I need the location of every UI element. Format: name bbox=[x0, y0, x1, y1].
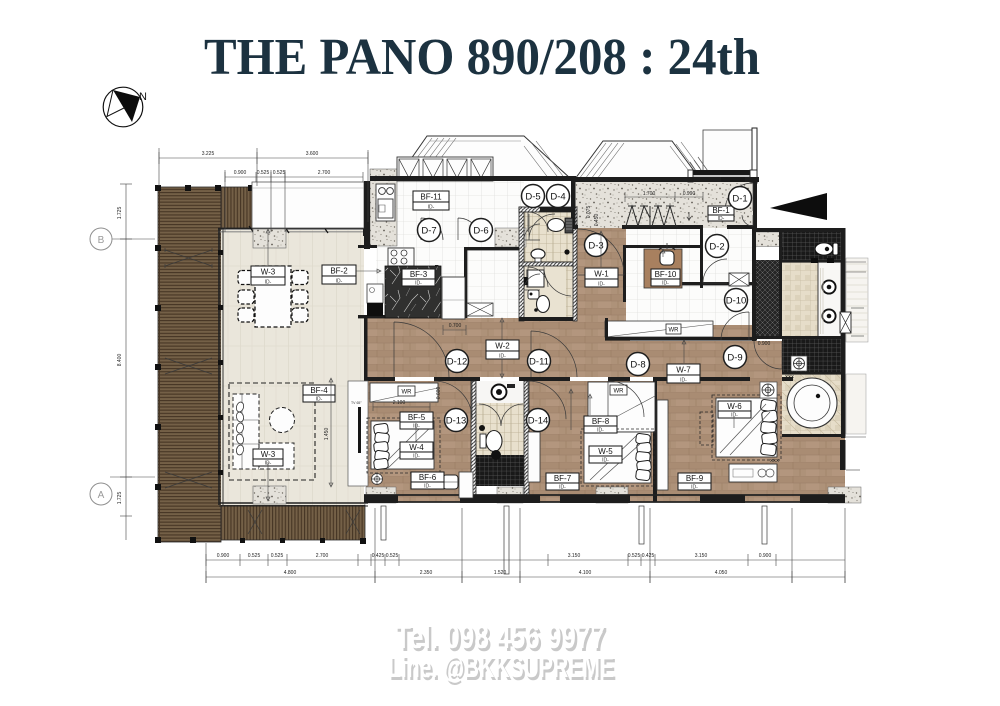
svg-text:ID-: ID- bbox=[336, 279, 343, 285]
svg-text:2.100: 2.100 bbox=[393, 400, 406, 406]
svg-text:0.525: 0.525 bbox=[271, 553, 284, 559]
svg-text:BF-5: BF-5 bbox=[408, 413, 426, 422]
svg-text:1.450: 1.450 bbox=[324, 428, 330, 441]
svg-text:N: N bbox=[139, 91, 147, 103]
svg-text:WR: WR bbox=[402, 390, 413, 396]
svg-text:BF-4: BF-4 bbox=[310, 386, 328, 395]
svg-text:BF-6: BF-6 bbox=[419, 473, 437, 482]
svg-text:1.725: 1.725 bbox=[117, 207, 123, 220]
svg-text:ID-: ID- bbox=[413, 424, 420, 430]
svg-text:1.700: 1.700 bbox=[643, 191, 656, 197]
svg-text:2.700: 2.700 bbox=[318, 170, 331, 176]
svg-text:TV 65": TV 65" bbox=[351, 401, 362, 405]
svg-text:D-5: D-5 bbox=[525, 192, 540, 203]
svg-text:0.900: 0.900 bbox=[759, 553, 772, 559]
svg-text:W-6: W-6 bbox=[727, 402, 742, 411]
svg-text:3.225: 3.225 bbox=[202, 151, 215, 157]
svg-text:0.900: 0.900 bbox=[217, 553, 230, 559]
svg-text:ID-: ID- bbox=[718, 216, 725, 222]
svg-text:4.050: 4.050 bbox=[715, 570, 728, 576]
svg-text:A: A bbox=[98, 490, 105, 501]
svg-text:0.900: 0.900 bbox=[758, 341, 771, 347]
svg-text:1.520: 1.520 bbox=[494, 570, 507, 576]
svg-text:BF-9: BF-9 bbox=[686, 474, 704, 483]
svg-text:ID-: ID- bbox=[662, 281, 669, 287]
svg-text:D-10: D-10 bbox=[726, 296, 747, 307]
svg-text:Line. @BKKSUPREME: Line. @BKKSUPREME bbox=[388, 649, 614, 684]
svg-text:0.990: 0.990 bbox=[683, 191, 696, 197]
svg-text:ID-: ID- bbox=[428, 205, 435, 211]
svg-text:THE PANO 890/208 : 24th: THE PANO 890/208 : 24th bbox=[204, 29, 760, 86]
svg-text:0.900: 0.900 bbox=[234, 170, 247, 176]
svg-text:BF-7: BF-7 bbox=[554, 474, 572, 483]
svg-text:BF-2: BF-2 bbox=[330, 267, 348, 276]
svg-text:D-11: D-11 bbox=[529, 357, 549, 368]
svg-text:2.350: 2.350 bbox=[420, 570, 433, 576]
svg-text:WR: WR bbox=[669, 328, 680, 334]
svg-text:3.150: 3.150 bbox=[695, 553, 708, 559]
svg-text:ID-: ID- bbox=[691, 485, 698, 491]
svg-text:D-6: D-6 bbox=[473, 226, 488, 237]
svg-text:ID-: ID- bbox=[559, 485, 566, 491]
svg-text:4.800: 4.800 bbox=[284, 570, 297, 576]
svg-text:D-2: D-2 bbox=[709, 242, 724, 253]
svg-text:ID-: ID- bbox=[598, 282, 605, 288]
svg-text:W-7: W-7 bbox=[676, 366, 691, 375]
svg-text:XXX: XXX bbox=[770, 458, 779, 463]
svg-text:0.525: 0.525 bbox=[273, 170, 286, 176]
svg-text:0.600: 0.600 bbox=[436, 387, 442, 400]
svg-text:4.100: 4.100 bbox=[579, 570, 592, 576]
svg-text:ID-: ID- bbox=[499, 354, 506, 360]
svg-text:0.525: 0.525 bbox=[257, 170, 270, 176]
svg-text:D-13: D-13 bbox=[446, 416, 467, 427]
svg-text:B: B bbox=[98, 235, 105, 246]
svg-text:W-3: W-3 bbox=[261, 450, 276, 459]
svg-text:0.525: 0.525 bbox=[386, 553, 399, 559]
svg-text:3.150: 3.150 bbox=[568, 553, 581, 559]
svg-text:BF-10: BF-10 bbox=[655, 270, 677, 279]
svg-text:ID-: ID- bbox=[316, 397, 323, 403]
svg-text:D-8: D-8 bbox=[630, 360, 645, 371]
svg-text:D-1: D-1 bbox=[732, 194, 747, 205]
svg-text:ID-: ID- bbox=[680, 378, 687, 384]
svg-text:ID-: ID- bbox=[413, 454, 420, 460]
svg-text:W-2: W-2 bbox=[495, 342, 510, 351]
svg-text:D-3: D-3 bbox=[588, 241, 603, 252]
svg-text:D-12: D-12 bbox=[447, 357, 468, 368]
svg-text:0.075: 0.075 bbox=[586, 206, 592, 219]
svg-text:D-7: D-7 bbox=[421, 226, 436, 237]
svg-text:0.525: 0.525 bbox=[248, 553, 261, 559]
svg-text:W-1: W-1 bbox=[594, 270, 609, 279]
svg-text:BF-11: BF-11 bbox=[420, 193, 442, 202]
svg-text:W-3: W-3 bbox=[261, 268, 276, 277]
svg-text:0.700: 0.700 bbox=[449, 323, 462, 329]
svg-text:D-14: D-14 bbox=[528, 416, 549, 427]
svg-text:BF-1: BF-1 bbox=[712, 206, 730, 215]
svg-text:0.525: 0.525 bbox=[628, 553, 641, 559]
svg-text:W-5: W-5 bbox=[598, 447, 613, 456]
svg-text:D-4: D-4 bbox=[550, 192, 565, 203]
svg-text:ID-: ID- bbox=[597, 428, 604, 434]
svg-text:ID-: ID- bbox=[424, 484, 431, 490]
svg-text:0.450: 0.450 bbox=[594, 214, 600, 227]
svg-text:1.725: 1.725 bbox=[117, 492, 123, 505]
svg-text:BF-3: BF-3 bbox=[410, 270, 428, 279]
svg-text:ID-: ID- bbox=[602, 458, 609, 464]
svg-text:WR: WR bbox=[614, 389, 625, 395]
svg-text:ID-: ID- bbox=[415, 281, 422, 287]
svg-text:ID-: ID- bbox=[265, 280, 272, 286]
svg-text:D-9: D-9 bbox=[727, 353, 742, 364]
svg-text:BF-8: BF-8 bbox=[592, 417, 610, 426]
svg-text:3.600: 3.600 bbox=[306, 151, 319, 157]
svg-text:0.425: 0.425 bbox=[642, 553, 655, 559]
svg-text:2.700: 2.700 bbox=[316, 553, 329, 559]
svg-text:0.425: 0.425 bbox=[372, 553, 385, 559]
svg-text:8.400: 8.400 bbox=[117, 354, 123, 367]
svg-text:ID-: ID- bbox=[731, 413, 738, 419]
svg-text:W-4: W-4 bbox=[409, 443, 424, 452]
